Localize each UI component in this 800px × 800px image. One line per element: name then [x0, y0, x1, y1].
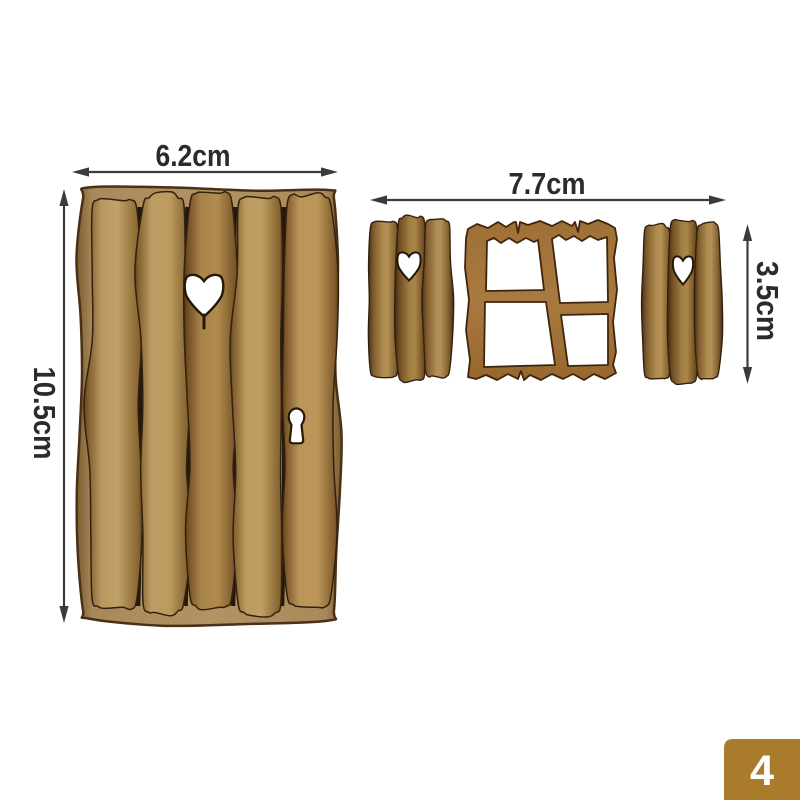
- svg-text:7.7cm: 7.7cm: [509, 167, 586, 201]
- svg-text:6.2cm: 6.2cm: [156, 139, 231, 173]
- svg-text:10.5cm: 10.5cm: [27, 367, 62, 460]
- svg-text:4: 4: [750, 747, 774, 795]
- svg-text:3.5cm: 3.5cm: [750, 261, 785, 341]
